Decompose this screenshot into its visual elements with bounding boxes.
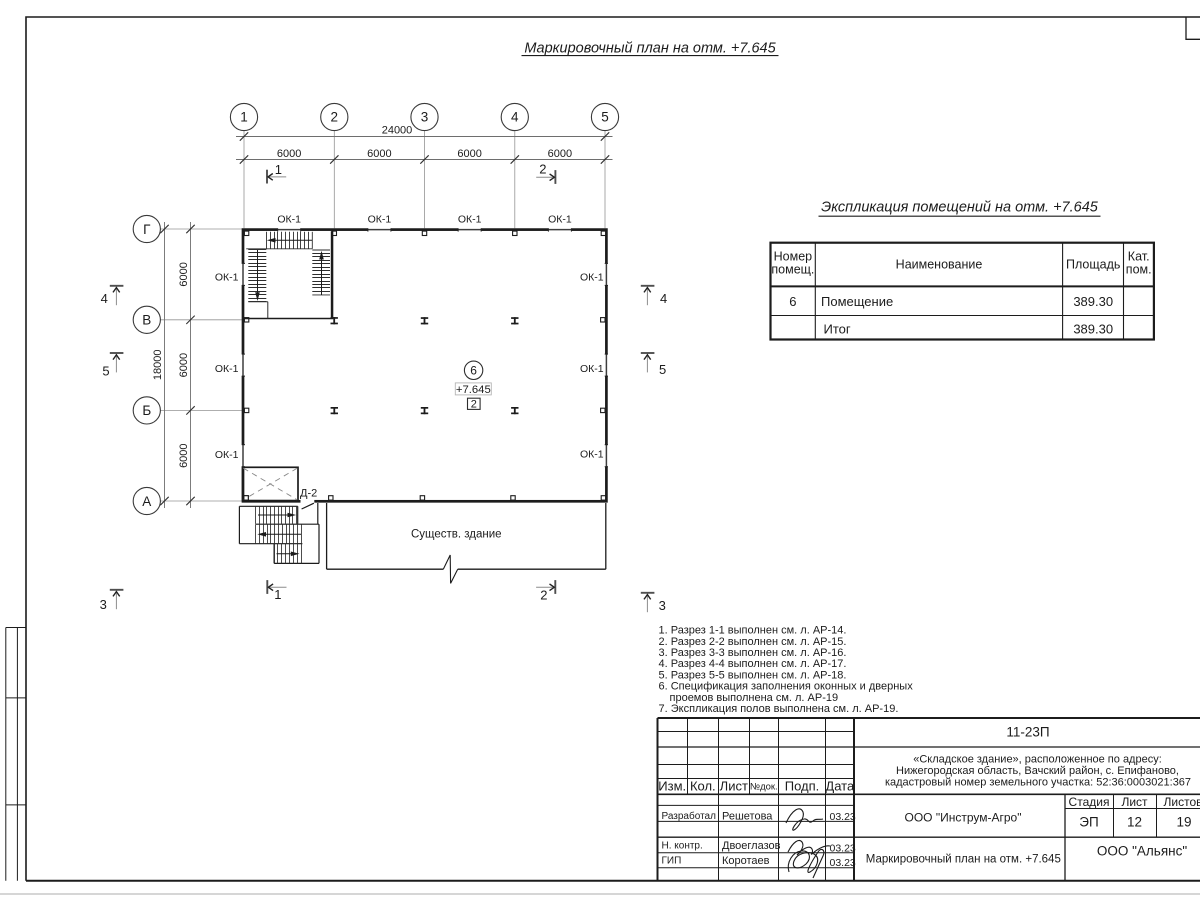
svg-text:6: 6 xyxy=(470,364,477,378)
svg-text:Нижегородская область, Вачский: Нижегородская область, Вачский район, с.… xyxy=(896,765,1179,777)
svg-text:389.30: 389.30 xyxy=(1073,294,1113,309)
svg-text:Экспликация помещений на отм.: Экспликация помещений на отм. +7.645 xyxy=(821,200,1099,216)
svg-text:4: 4 xyxy=(660,291,667,306)
svg-text:Итог: Итог xyxy=(824,321,851,336)
svg-text:ОК-1: ОК-1 xyxy=(580,449,604,461)
svg-text:Лист: Лист xyxy=(1121,795,1148,809)
svg-text:Помещение: Помещение xyxy=(821,294,893,309)
svg-text:6000: 6000 xyxy=(548,148,572,160)
svg-text:ОК-1: ОК-1 xyxy=(580,271,604,283)
svg-text:1: 1 xyxy=(240,110,248,125)
svg-text:18000: 18000 xyxy=(152,350,164,381)
svg-text:1. Разрез 1-1 выполнен см. л.: 1. Разрез 1-1 выполнен см. л. АР-14. xyxy=(659,625,847,637)
svg-text:ОК-1: ОК-1 xyxy=(215,271,239,283)
svg-text:ОК-1: ОК-1 xyxy=(215,363,239,375)
svg-text:ЭП: ЭП xyxy=(1079,814,1098,829)
svg-text:03.23: 03.23 xyxy=(830,857,856,869)
svg-text:6. Спецификация заполнения око: 6. Спецификация заполнения оконных и две… xyxy=(659,681,914,693)
svg-text:6000: 6000 xyxy=(457,148,481,160)
svg-text:19: 19 xyxy=(1176,814,1191,829)
svg-text:ГИП: ГИП xyxy=(662,856,682,867)
svg-text:ОК-1: ОК-1 xyxy=(548,214,572,226)
svg-text:кадастровый номер земельного у: кадастровый номер земельного участка: 52… xyxy=(885,776,1191,788)
svg-text:6000: 6000 xyxy=(178,443,190,467)
svg-text:Стадия: Стадия xyxy=(1069,795,1110,809)
svg-text:Листов: Листов xyxy=(1164,795,1200,809)
svg-text:Б: Б xyxy=(142,403,151,418)
svg-text:3: 3 xyxy=(421,110,429,125)
svg-text:Площадь: Площадь xyxy=(1066,258,1120,272)
svg-text:12: 12 xyxy=(1127,814,1142,829)
svg-text:3. Разрез 3-3 выполнен см. л.: 3. Разрез 3-3 выполнен см. л. АР-16. xyxy=(659,647,847,659)
svg-text:1: 1 xyxy=(274,587,281,602)
svg-text:ОК-1: ОК-1 xyxy=(580,363,604,375)
svg-text:Н. контр.: Н. контр. xyxy=(662,840,703,851)
svg-text:2: 2 xyxy=(471,399,477,411)
svg-text:помещ.: помещ. xyxy=(771,263,814,277)
svg-text:5: 5 xyxy=(659,362,666,377)
svg-text:Двоеглазов: Двоеглазов xyxy=(722,840,781,852)
svg-text:5. Разрез 5-5 выполнен см. л.: 5. Разрез 5-5 выполнен см. л. АР-18. xyxy=(659,669,847,681)
svg-text:«Складское здание», расположен: «Складское здание», расположенное по адр… xyxy=(913,754,1162,766)
svg-text:Существ. здание: Существ. здание xyxy=(411,528,502,540)
svg-text:3: 3 xyxy=(100,597,107,612)
svg-text:В: В xyxy=(142,313,151,328)
svg-text:5: 5 xyxy=(102,363,109,378)
svg-text:2: 2 xyxy=(540,587,547,602)
svg-text:ОК-1: ОК-1 xyxy=(215,449,239,461)
svg-text:6: 6 xyxy=(789,294,796,309)
svg-text:ОК-1: ОК-1 xyxy=(458,214,482,226)
svg-text:389.30: 389.30 xyxy=(1073,321,1113,336)
svg-text:Коротаев: Коротаев xyxy=(722,855,770,867)
svg-text:4. Разрез 4-4 выполнен см. л.: 4. Разрез 4-4 выполнен см. л. АР-17. xyxy=(659,658,847,670)
svg-text:Подп.: Подп. xyxy=(785,779,820,794)
svg-text:+7.645: +7.645 xyxy=(456,384,491,396)
svg-text:пом.: пом. xyxy=(1126,263,1152,277)
svg-text:Кат.: Кат. xyxy=(1128,249,1150,263)
svg-text:Дата: Дата xyxy=(825,779,855,794)
svg-text:№док.: №док. xyxy=(750,782,778,793)
svg-text:Номер: Номер xyxy=(774,249,813,263)
svg-text:проемов выполнена см. л. АР-19: проемов выполнена см. л. АР-19 xyxy=(670,692,839,704)
svg-text:Маркировочный план на отм. +7.: Маркировочный план на отм. +7.645 xyxy=(524,41,776,57)
svg-text:24000: 24000 xyxy=(382,125,413,137)
svg-text:Решетова: Решетова xyxy=(722,810,773,822)
svg-text:6000: 6000 xyxy=(178,353,190,377)
svg-text:Изм.: Изм. xyxy=(658,779,686,794)
svg-text:03.23: 03.23 xyxy=(830,842,856,854)
svg-text:Д-2: Д-2 xyxy=(300,487,317,499)
svg-text:ООО "Альянс": ООО "Альянс" xyxy=(1097,843,1187,858)
svg-text:ООО "Инструм-Агро": ООО "Инструм-Агро" xyxy=(905,811,1022,825)
svg-text:2. Разрез 2-2 выполнен см. л.: 2. Разрез 2-2 выполнен см. л. АР-15. xyxy=(659,636,847,648)
svg-text:2: 2 xyxy=(539,161,546,176)
svg-text:Кол.: Кол. xyxy=(690,779,716,794)
svg-text:Г: Г xyxy=(143,222,151,237)
svg-text:1: 1 xyxy=(275,162,282,177)
svg-text:ОК-1: ОК-1 xyxy=(368,214,392,226)
svg-text:А: А xyxy=(142,494,151,509)
svg-text:03.23: 03.23 xyxy=(830,811,856,823)
svg-text:2: 2 xyxy=(331,110,339,125)
svg-text:6000: 6000 xyxy=(277,148,301,160)
svg-text:Наименование: Наименование xyxy=(896,258,983,272)
svg-text:Разработал: Разработал xyxy=(662,810,717,822)
svg-text:Маркировочный план на отм. +7.: Маркировочный план на отм. +7.645 xyxy=(866,853,1061,865)
svg-text:4: 4 xyxy=(511,110,519,125)
svg-text:ОК-1: ОК-1 xyxy=(277,214,301,226)
svg-text:Лист: Лист xyxy=(720,779,748,794)
svg-text:5: 5 xyxy=(601,110,609,125)
svg-text:6000: 6000 xyxy=(178,262,190,286)
svg-text:6000: 6000 xyxy=(367,148,391,160)
svg-text:11-23П: 11-23П xyxy=(1006,724,1049,739)
svg-text:4: 4 xyxy=(101,291,108,306)
svg-text:3: 3 xyxy=(659,598,666,613)
svg-text:7. Экспликация полов выполнена: 7. Экспликация полов выполнена см. л. АР… xyxy=(659,703,899,715)
